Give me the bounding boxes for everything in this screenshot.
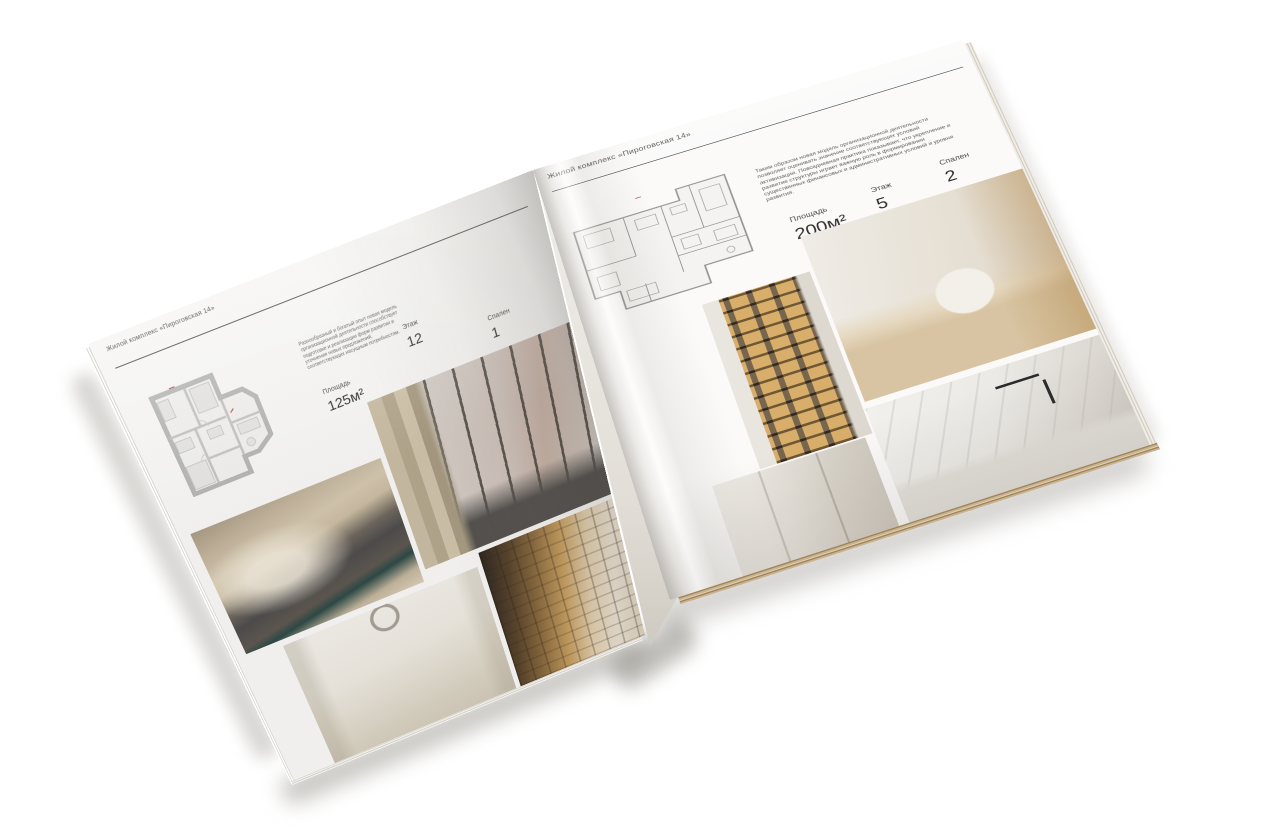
stat-area: Площадь 125м² bbox=[322, 376, 367, 415]
brochure-mockup-scene: Жилой комплекс «Пироговская 14» bbox=[0, 0, 1280, 835]
stat-floor: Этаж 12 bbox=[402, 319, 425, 351]
stat-floor-value: 12 bbox=[405, 329, 425, 351]
stat-bedrooms: Спален 1 bbox=[487, 308, 516, 342]
stat-bedrooms-value: 1 bbox=[490, 318, 516, 342]
apartment-description: Разнообразный и богатый опыт новая модел… bbox=[298, 303, 408, 372]
apartment-description: Таким образом новая модель организационн… bbox=[755, 109, 969, 204]
stat-bedrooms: Спален 2 bbox=[938, 151, 979, 186]
